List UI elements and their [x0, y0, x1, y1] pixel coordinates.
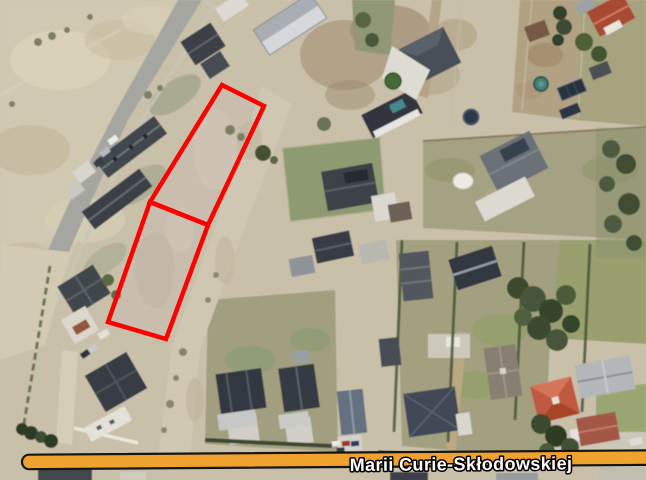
street-label: Marii Curie-Skłodowskiej [350, 453, 573, 475]
aerial-photo: Marii Curie-Skłodowskiej [0, 0, 646, 480]
house [403, 387, 461, 438]
tent [453, 173, 473, 189]
house [337, 389, 367, 435]
house [278, 364, 320, 413]
trampoline [464, 110, 479, 125]
house [399, 251, 434, 302]
house [215, 368, 266, 414]
aerial-map-screenshot: Marii Curie-Skłodowskiej [0, 0, 646, 480]
